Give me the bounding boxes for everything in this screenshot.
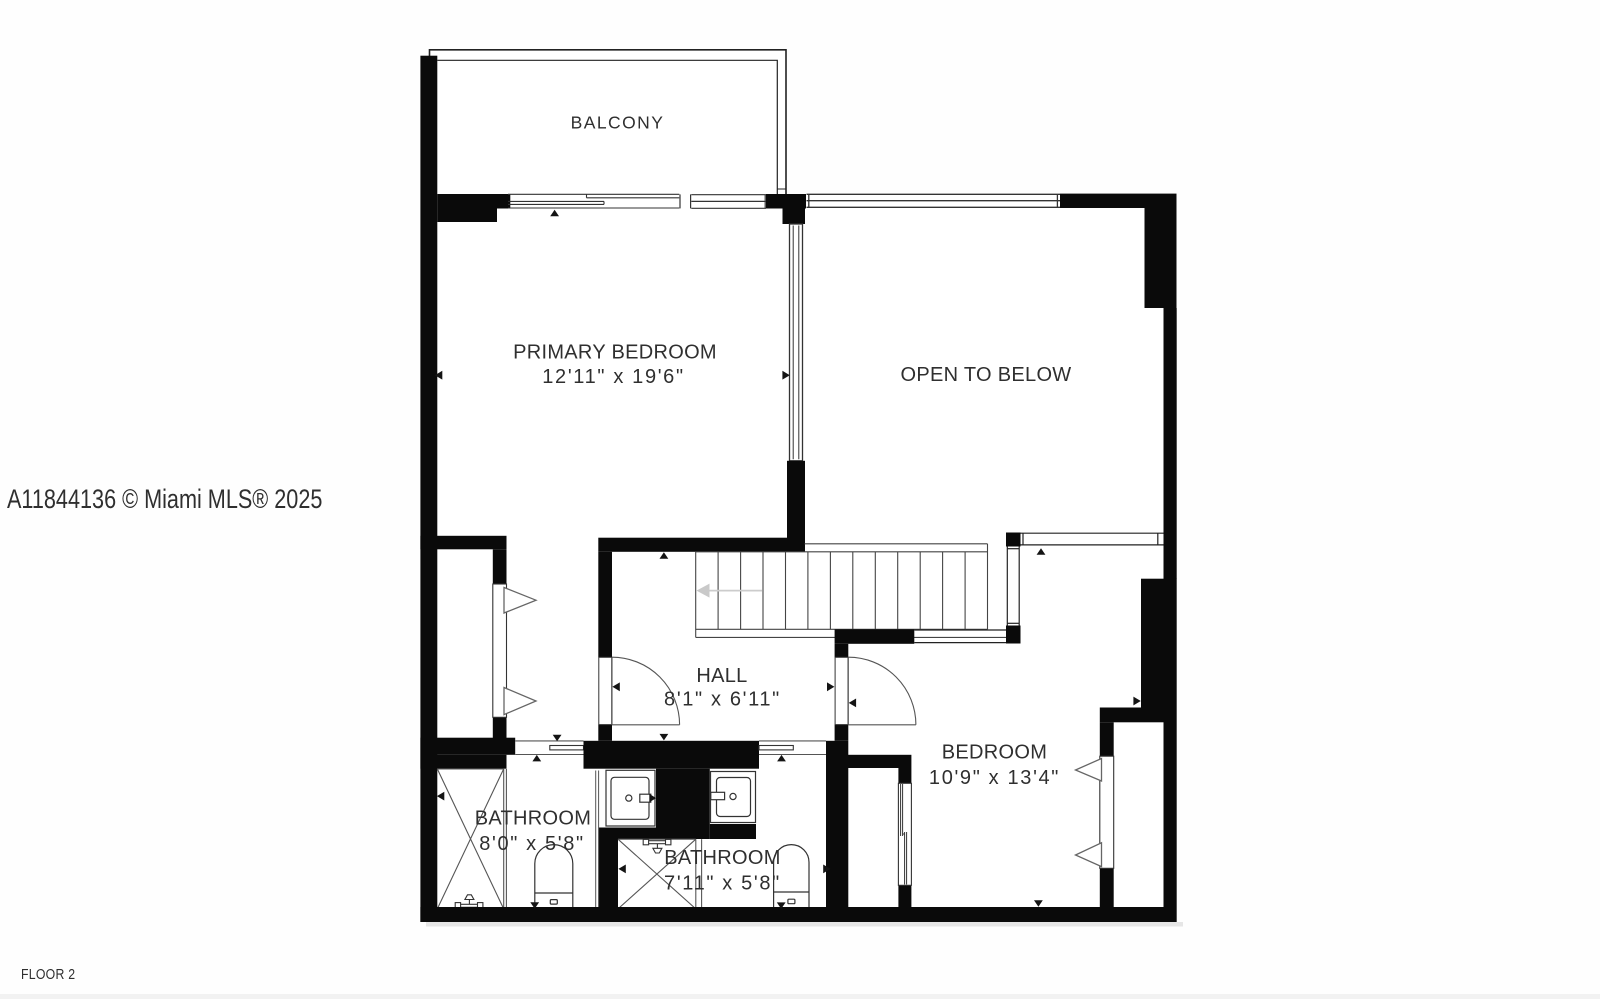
svg-text:PRIMARY BEDROOM: PRIMARY BEDROOM <box>513 342 717 364</box>
svg-text:BALCONY: BALCONY <box>571 112 665 132</box>
svg-text:A11844136 © Miami MLS® 2025: A11844136 © Miami MLS® 2025 <box>7 485 322 515</box>
svg-text:BATHROOM: BATHROOM <box>475 808 591 830</box>
svg-text:12'11" x 19'6": 12'11" x 19'6" <box>542 366 684 388</box>
svg-text:7'11" x 5'8": 7'11" x 5'8" <box>664 873 781 895</box>
svg-text:8'0" x 5'8": 8'0" x 5'8" <box>479 833 585 855</box>
svg-text:BATHROOM: BATHROOM <box>664 847 780 869</box>
svg-text:FLOOR 2: FLOOR 2 <box>21 966 75 982</box>
svg-text:10'9" x 13'4": 10'9" x 13'4" <box>929 767 1060 789</box>
svg-text:8'1" x 6'11": 8'1" x 6'11" <box>664 689 781 711</box>
svg-text:HALL: HALL <box>696 665 747 687</box>
svg-text:BEDROOM: BEDROOM <box>942 741 1047 763</box>
svg-text:OPEN TO BELOW: OPEN TO BELOW <box>901 364 1072 386</box>
